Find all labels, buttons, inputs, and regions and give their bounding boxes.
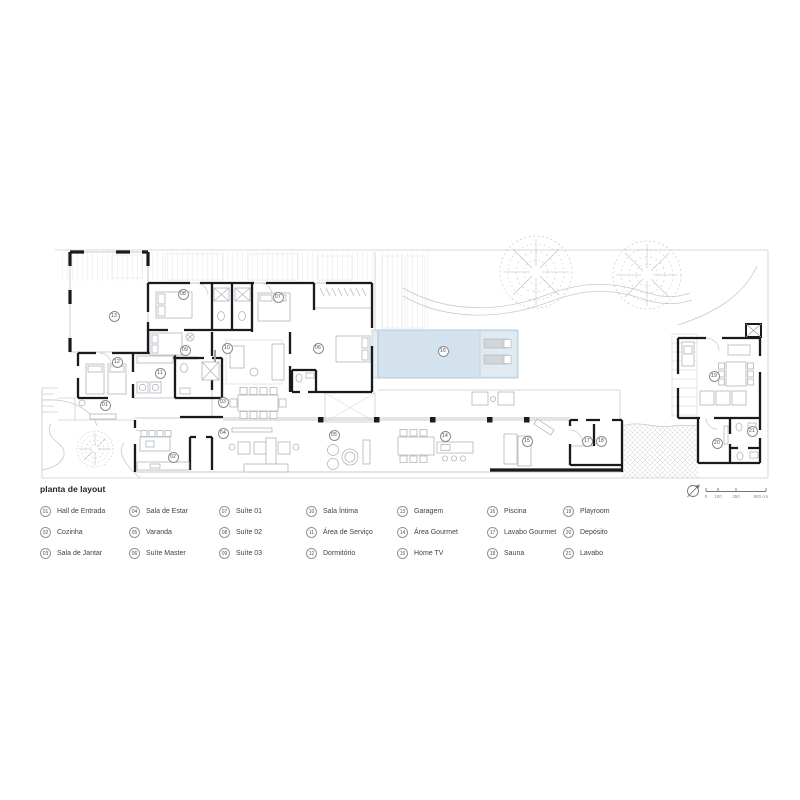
room-marker-number: 03	[220, 400, 226, 405]
floor-plan-drawing: 0 100 250 500 cm	[0, 0, 800, 800]
legend-item-number: 04	[129, 506, 140, 517]
pool-lounger	[484, 339, 511, 348]
legend-column: 04 Sala de Estar 05 Varanda 06 Suíte Mas…	[129, 501, 188, 564]
legend-item-label: Suíte 03	[236, 550, 262, 557]
scale-tick-500: 500 cm	[754, 494, 769, 499]
legend-item: 13 Garagem	[397, 501, 458, 522]
room-marker: 13	[109, 311, 120, 322]
room-marker-number: 19	[711, 374, 717, 379]
room-marker-number: 14	[442, 434, 448, 439]
room-marker-number: 05	[331, 433, 337, 438]
legend-item-label: Suíte 02	[236, 529, 262, 536]
north-arrow-icon	[688, 484, 700, 497]
legend-item-label: Home TV	[414, 550, 443, 557]
legend-column: 13 Garagem 14 Área Gourmet 15 Home TV	[397, 501, 458, 564]
legend-title: planta de layout	[40, 484, 105, 494]
deck-hatch	[622, 424, 698, 478]
room-marker: 04	[218, 428, 229, 439]
legend-item-number: 10	[306, 506, 317, 517]
legend-item-number: 11	[306, 527, 317, 538]
legend-item-label: Sala de Estar	[146, 508, 188, 515]
room-marker: 16	[438, 346, 449, 357]
legend-item-label: Sala de Jantar	[57, 550, 102, 557]
room-marker-number: 11	[157, 371, 163, 376]
scale-tick-250: 250	[732, 494, 740, 499]
legend-column: 10 Sala Íntima 11 Área de Serviço 12 Dor…	[306, 501, 373, 564]
legend-item-number: 18	[487, 548, 498, 559]
legend-item: 19 Playroom	[563, 501, 610, 522]
room-marker: 03	[218, 397, 229, 408]
legend-item: 06 Suíte Master	[129, 543, 188, 564]
legend-item-number: 05	[129, 527, 140, 538]
legend-item: 10 Sala Íntima	[306, 501, 373, 522]
legend-item-number: 20	[563, 527, 574, 538]
room-marker: 20	[712, 438, 723, 449]
room-marker: 05	[329, 430, 340, 441]
room-marker: 07	[273, 292, 284, 303]
legend-item-number: 09	[219, 548, 230, 559]
legend-item-label: Lavabo Gourmet	[504, 529, 556, 536]
legend-item-number: 21	[563, 548, 574, 559]
legend-item-number: 07	[219, 506, 230, 517]
tree-large-1	[500, 236, 572, 308]
legend-item: 09 Suíte 03	[219, 543, 262, 564]
legend-item-label: Depósito	[580, 529, 608, 536]
scale-tick-0: 0	[705, 494, 708, 499]
legend-item-label: Área de Serviço	[323, 529, 373, 536]
legend-item-label: Suíte Master	[146, 550, 186, 557]
room-marker-number: 21	[749, 429, 755, 434]
room-marker-number: 06	[315, 346, 321, 351]
equipment-box	[746, 324, 761, 337]
room-marker-number: 13	[111, 314, 117, 319]
legend-item-number: 16	[487, 506, 498, 517]
room-marker-number: 20	[714, 441, 720, 446]
room-marker: 15	[522, 436, 533, 447]
legend-item-number: 14	[397, 527, 408, 538]
room-marker: 19	[709, 371, 720, 382]
tree-spiral	[77, 431, 113, 467]
room-marker: 17	[582, 436, 593, 447]
legend-item: 08 Suíte 02	[219, 522, 262, 543]
room-marker-number: 16	[440, 349, 446, 354]
room-marker-number: 10	[224, 346, 230, 351]
legend-item: 04 Sala de Estar	[129, 501, 188, 522]
legend-item-number: 03	[40, 548, 51, 559]
legend-item: 20 Depósito	[563, 522, 610, 543]
room-marker: 10	[222, 343, 233, 354]
scale-tick-100: 100	[714, 494, 722, 499]
legend-item-label: Garagem	[414, 508, 443, 515]
legend-item: 07 Suíte 01	[219, 501, 262, 522]
legend-column: 16 Piscina 17 Lavabo Gourmet 18 Sauna	[487, 501, 556, 564]
legend-item: 11 Área de Serviço	[306, 522, 373, 543]
room-marker: 06	[313, 343, 324, 354]
room-marker-number: 04	[220, 431, 226, 436]
floor-plan-page: 0 100 250 500 cm 01 02 03 04 05 06 07 08…	[0, 0, 800, 800]
legend-item-number: 01	[40, 506, 51, 517]
legend-item-label: Playroom	[580, 508, 610, 515]
room-marker: 08	[178, 289, 189, 300]
legend-item-number: 06	[129, 548, 140, 559]
legend-item: 17 Lavabo Gourmet	[487, 522, 556, 543]
legend-item-number: 12	[306, 548, 317, 559]
legend-item-number: 19	[563, 506, 574, 517]
room-marker-number: 15	[524, 439, 530, 444]
legend-item: 15 Home TV	[397, 543, 458, 564]
legend-column: 07 Suíte 01 08 Suíte 02 09 Suíte 03	[219, 501, 262, 564]
room-marker-number: 09	[182, 348, 188, 353]
legend-item-label: Sauna	[504, 550, 524, 557]
legend-item: 12 Dormitório	[306, 543, 373, 564]
room-marker-number: 12	[114, 360, 120, 365]
room-marker-number: 07	[275, 295, 281, 300]
room-marker: 01	[100, 400, 111, 411]
room-marker: 21	[747, 426, 758, 437]
legend-column: 01 Hall de Entrada 02 Cozinha 03 Sala de…	[40, 501, 105, 564]
legend-item-label: Suíte 01	[236, 508, 262, 515]
legend-item-label: Hall de Entrada	[57, 508, 105, 515]
legend-item: 01 Hall de Entrada	[40, 501, 105, 522]
legend-item-number: 13	[397, 506, 408, 517]
room-marker-number: 01	[102, 403, 108, 408]
legend-item-label: Piscina	[504, 508, 527, 515]
scale-bar: 0 100 250 500 cm	[705, 488, 769, 499]
legend-item-number: 15	[397, 548, 408, 559]
legend-item: 05 Varanda	[129, 522, 188, 543]
room-marker-number: 18	[598, 439, 604, 444]
tree-large-2	[613, 241, 681, 309]
room-marker: 09	[180, 345, 191, 356]
room-marker: 02	[168, 452, 179, 463]
legend-item-label: Lavabo	[580, 550, 603, 557]
legend-item-label: Área Gourmet	[414, 529, 458, 536]
legend-item-number: 08	[219, 527, 230, 538]
legend-item-number: 17	[487, 527, 498, 538]
legend-item: 21 Lavabo	[563, 543, 610, 564]
legend-item: 18 Sauna	[487, 543, 556, 564]
room-marker: 14	[440, 431, 451, 442]
legend-item: 03 Sala de Jantar	[40, 543, 105, 564]
room-marker: 18	[596, 436, 607, 447]
legend-item-label: Dormitório	[323, 550, 355, 557]
room-marker-number: 08	[180, 292, 186, 297]
legend-item-number: 02	[40, 527, 51, 538]
room-marker: 12	[112, 357, 123, 368]
room-marker-number: 17	[584, 439, 590, 444]
patio-chairs	[472, 392, 514, 405]
legend-item-label: Cozinha	[57, 529, 83, 536]
room-marker: 11	[155, 368, 166, 379]
pool-lounger	[484, 355, 511, 364]
legend-item: 16 Piscina	[487, 501, 556, 522]
legend-item-label: Varanda	[146, 529, 172, 536]
legend-item: 14 Área Gourmet	[397, 522, 458, 543]
room-marker-number: 02	[170, 455, 176, 460]
legend-item: 02 Cozinha	[40, 522, 105, 543]
legend-item-label: Sala Íntima	[323, 508, 358, 515]
legend-column: 19 Playroom 20 Depósito 21 Lavabo	[563, 501, 610, 564]
